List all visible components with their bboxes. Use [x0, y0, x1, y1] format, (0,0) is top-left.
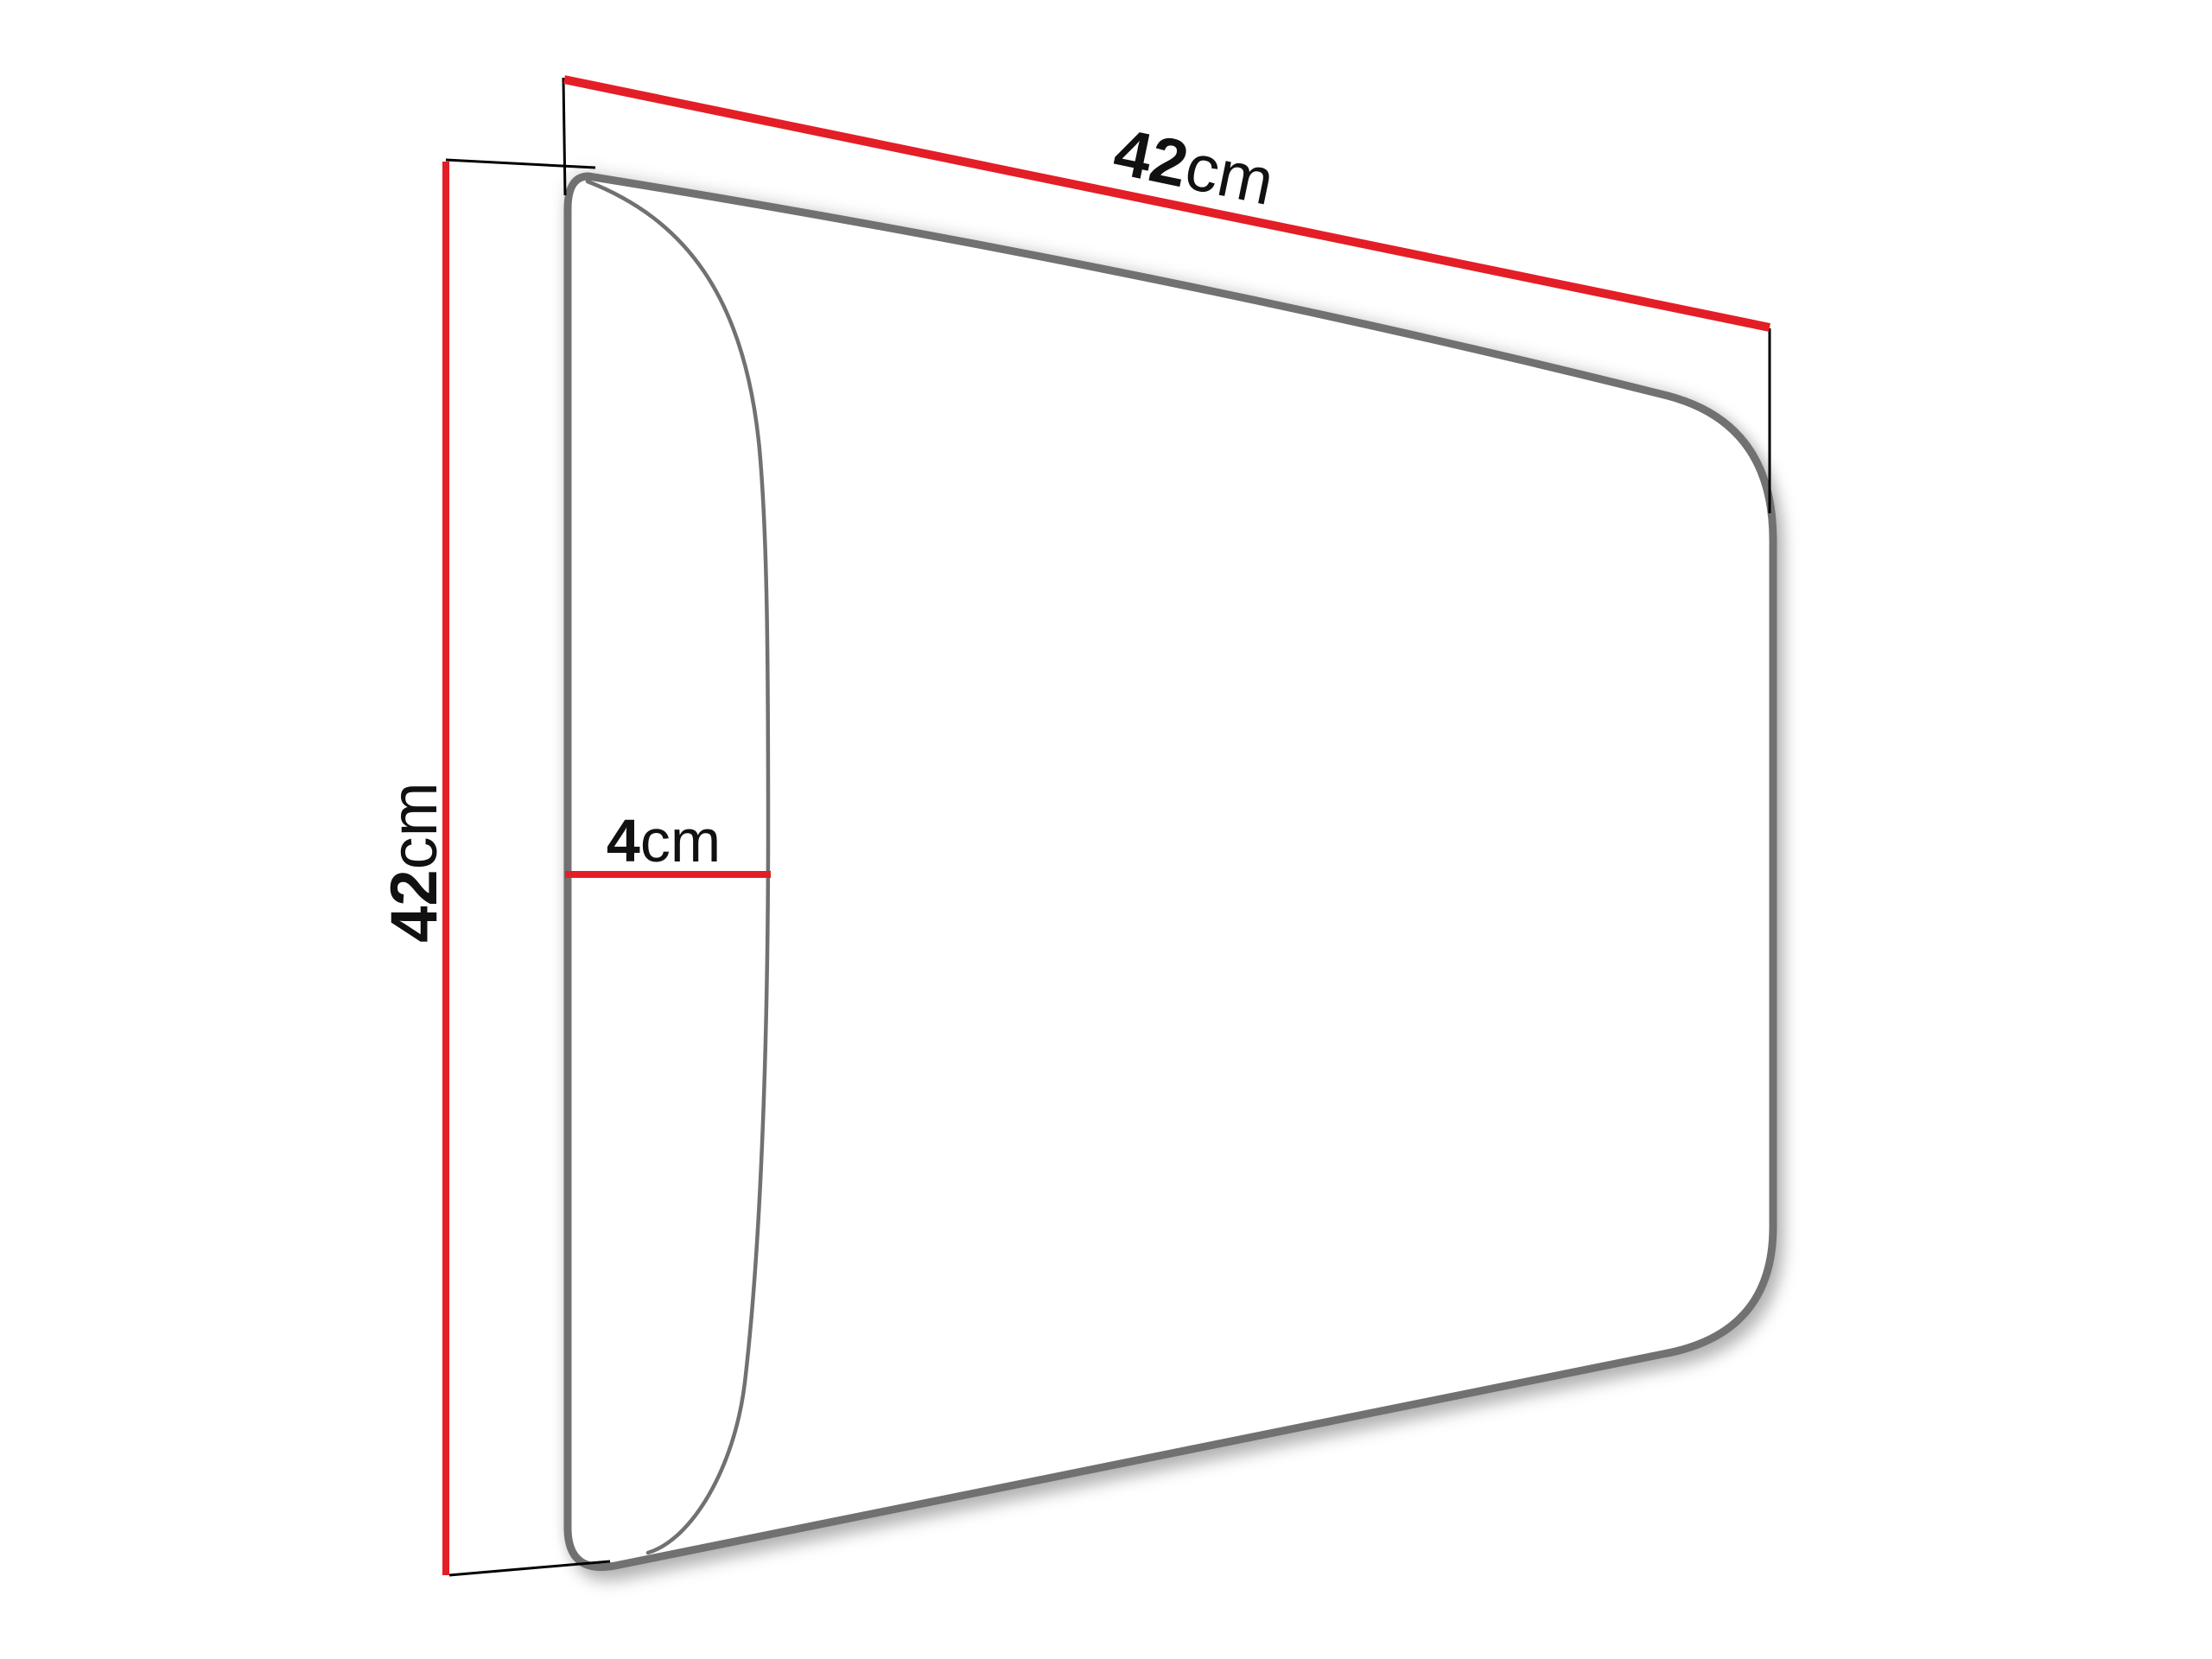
depth-value: 4: [607, 807, 640, 874]
diagram-canvas: 42cm 42cm 4cm: [0, 0, 2212, 1659]
depth-unit: cm: [640, 807, 721, 874]
height-extension-line-top: [446, 160, 595, 168]
height-value: 42: [378, 869, 451, 943]
panel-dimension-diagram: 42cm 42cm 4cm: [0, 0, 2212, 1659]
height-dimension-text: 42cm: [378, 782, 451, 943]
width-extension-line-left: [563, 78, 565, 195]
width-dimension-text: 42cm: [1108, 115, 1280, 219]
depth-dimension-label: 4cm: [607, 807, 721, 874]
height-unit: cm: [378, 782, 451, 869]
height-dimension-label: 42cm: [378, 782, 451, 943]
width-dimension-label: 42cm: [1108, 115, 1280, 219]
